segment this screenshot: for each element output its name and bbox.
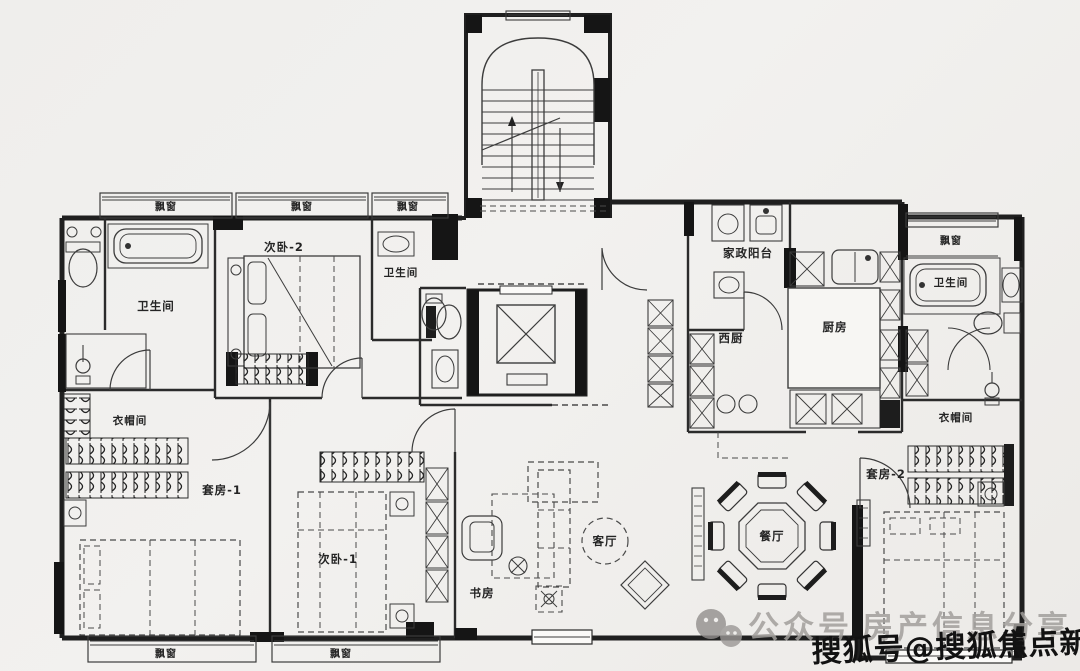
study-label: 书房 <box>470 586 495 600</box>
west-kitchen-fixtures <box>690 334 790 458</box>
bay-window-top-1-label: 飘窗 <box>155 200 177 213</box>
room-labels: 飘窗飘窗飘窗卫生间次卧-2卫生间家政阳台西厨厨房飘窗卫生间衣帽间衣帽间套房-1套… <box>113 200 974 660</box>
bay-window-top-2-label: 飘窗 <box>291 200 313 213</box>
bedroom-2-label: 次卧-2 <box>264 240 304 254</box>
bay-window-bottom-1-label: 飘窗 <box>155 647 177 660</box>
bathroom-left-label: 卫生间 <box>137 299 175 313</box>
study-furniture <box>462 494 554 578</box>
floorplan-image: 飘窗飘窗飘窗卫生间次卧-2卫生间家政阳台西厨厨房飘窗卫生间衣帽间衣帽间套房-1套… <box>0 0 1080 671</box>
closet-left-label: 衣帽间 <box>113 414 148 427</box>
kitchen-fixtures <box>788 250 900 428</box>
west-kitchen-label: 西厨 <box>719 331 744 345</box>
living-room-label: 客厅 <box>592 534 618 548</box>
kitchen-label: 厨房 <box>823 320 848 334</box>
bay-window-right-label: 飘窗 <box>940 234 962 247</box>
hall-duct-shaft <box>648 300 673 407</box>
elevator <box>468 286 586 395</box>
staircase <box>480 11 606 211</box>
bathroom-2-label: 卫生间 <box>384 266 419 279</box>
bay-window-bottom-2-label: 飘窗 <box>330 647 352 660</box>
hall-toilet <box>426 305 461 388</box>
suite-1-label: 套房-1 <box>202 483 242 497</box>
floor-plan-svg: 飘窗飘窗飘窗卫生间次卧-2卫生间家政阳台西厨厨房飘窗卫生间衣帽间衣帽间套房-1套… <box>0 0 1080 671</box>
suite-2-label: 套房-2 <box>866 467 906 481</box>
bathroom-right-label: 卫生间 <box>934 276 969 289</box>
closet-right-racks <box>908 444 1014 506</box>
laundry-balcony-label: 家政阳台 <box>723 246 773 260</box>
bay-window-top-3-label: 飘窗 <box>397 200 419 213</box>
bedroom-1-furniture <box>298 452 448 632</box>
dining-room-label: 餐厅 <box>759 529 785 543</box>
watermark: 公众号 房产信息分享 搜狐号@搜狐焦点新余站 <box>696 609 1080 670</box>
suite-1-bed <box>64 500 240 635</box>
closet-left-racks <box>64 394 188 498</box>
bedroom-1-label: 次卧-1 <box>318 552 358 566</box>
closet-right-label: 衣帽间 <box>939 411 974 424</box>
wechat-icon <box>696 609 742 647</box>
